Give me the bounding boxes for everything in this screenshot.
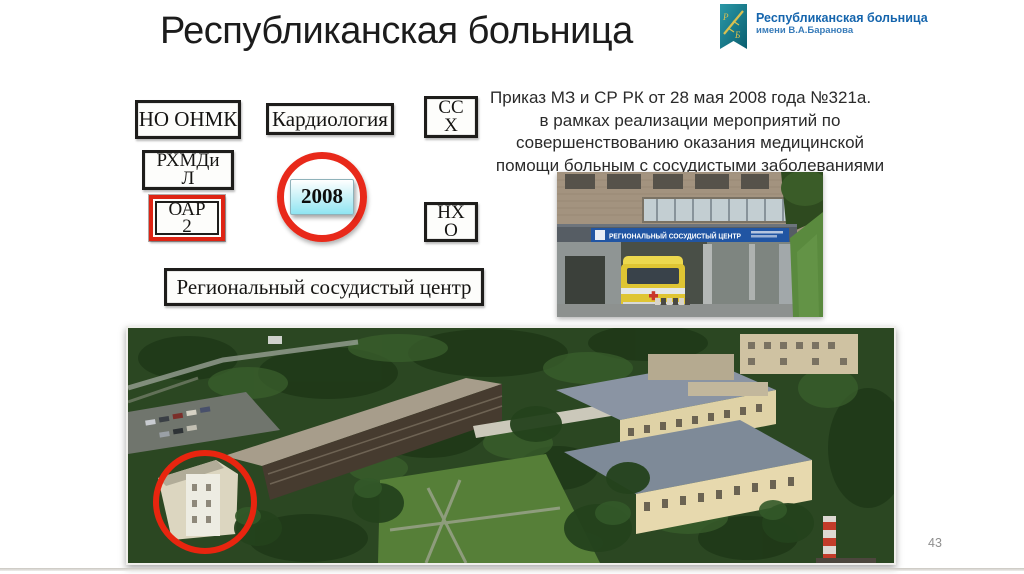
- entrance-photo: РЕГИОНАЛЬНЫЙ СОСУДИСТЫЙ ЦЕНТР: [557, 172, 823, 317]
- aerial-photo: [126, 326, 896, 565]
- page-title: Республиканская больница: [160, 10, 633, 53]
- logo-subtitle: имени В.А.Баранова: [756, 25, 928, 36]
- slide: Республиканская больница Р Б Республикан…: [0, 0, 1024, 574]
- dept-box-oar-2: ОАР 2: [155, 201, 219, 235]
- order-text: Приказ МЗ и СР РК от 28 мая 2008 года №3…: [484, 87, 896, 177]
- dept-box-nho: НХ О: [424, 202, 478, 242]
- slide-bottom-edge: [0, 568, 1024, 571]
- entrance-sign-text: РЕГИОНАЛЬНЫЙ СОСУДИСТЫЙ ЦЕНТР: [609, 232, 741, 241]
- dept-box-oar-2-highlight: ОАР 2: [149, 195, 225, 241]
- entrance-photo-image: РЕГИОНАЛЬНЫЙ СОСУДИСТЫЙ ЦЕНТР: [557, 172, 823, 317]
- logo-ribbon-icon: Р Б: [720, 4, 747, 50]
- page-number: 43: [928, 536, 942, 550]
- logo-text: Республиканская больница имени В.А.Баран…: [756, 4, 928, 36]
- logo-title: Республиканская больница: [756, 11, 928, 25]
- dept-box-ssh: СС Х: [424, 96, 478, 138]
- result-box-regional-vascular-center: Региональный сосудистый центр: [164, 268, 484, 306]
- hospital-logo: Р Б Республиканская больница имени В.А.Б…: [720, 4, 928, 50]
- logo-monogram-b: Б: [734, 30, 741, 40]
- aerial-photo-image: [128, 328, 894, 563]
- year-circle-annotation: 2008: [277, 152, 367, 242]
- dept-box-no-onmk: НО ОНМК: [135, 100, 241, 139]
- dept-box-kardiologia: Кардиология: [266, 103, 394, 135]
- year-badge: 2008: [290, 179, 354, 215]
- logo-monogram-p: Р: [722, 12, 729, 22]
- dept-box-rhmdil: РХМДи Л: [142, 150, 234, 190]
- entrance-sign: РЕГИОНАЛЬНЫЙ СОСУДИСТЫЙ ЦЕНТР: [591, 228, 789, 242]
